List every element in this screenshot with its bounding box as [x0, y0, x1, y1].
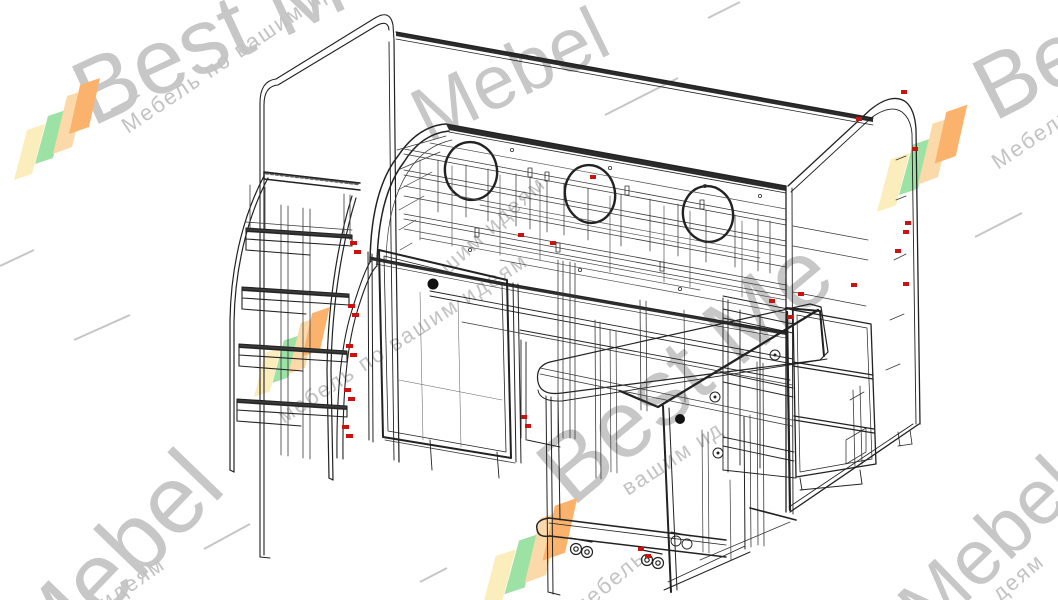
- svg-text:Mebel: Mebel: [398, 0, 621, 158]
